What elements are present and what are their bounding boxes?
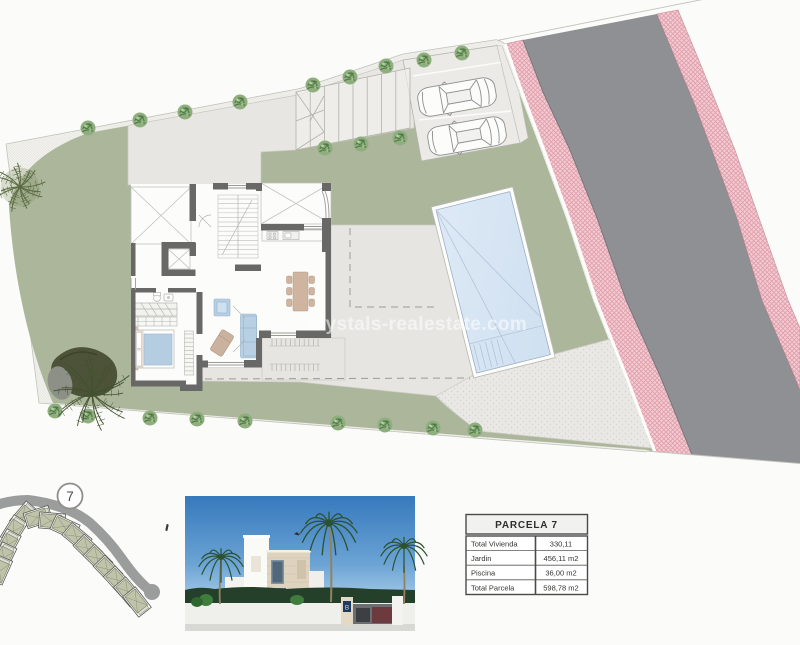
svg-text:7: 7 [66,489,74,504]
svg-text:36,00 m2: 36,00 m2 [545,569,576,578]
svg-text:Total Vivienda: Total Vivienda [471,540,518,549]
svg-text:crystals-realestate.com: crystals-realestate.com [307,314,527,335]
svg-text:B: B [345,605,349,612]
svg-text:Total Parcela: Total Parcela [471,583,515,592]
svg-text:Piscina: Piscina [471,569,496,578]
svg-text:PARCELA 7: PARCELA 7 [495,520,558,531]
svg-text:456,11 m2: 456,11 m2 [544,554,579,563]
svg-text:Jardin: Jardin [471,554,491,563]
svg-text:598,78 m2: 598,78 m2 [543,583,578,592]
svg-text:330,11: 330,11 [550,540,572,549]
